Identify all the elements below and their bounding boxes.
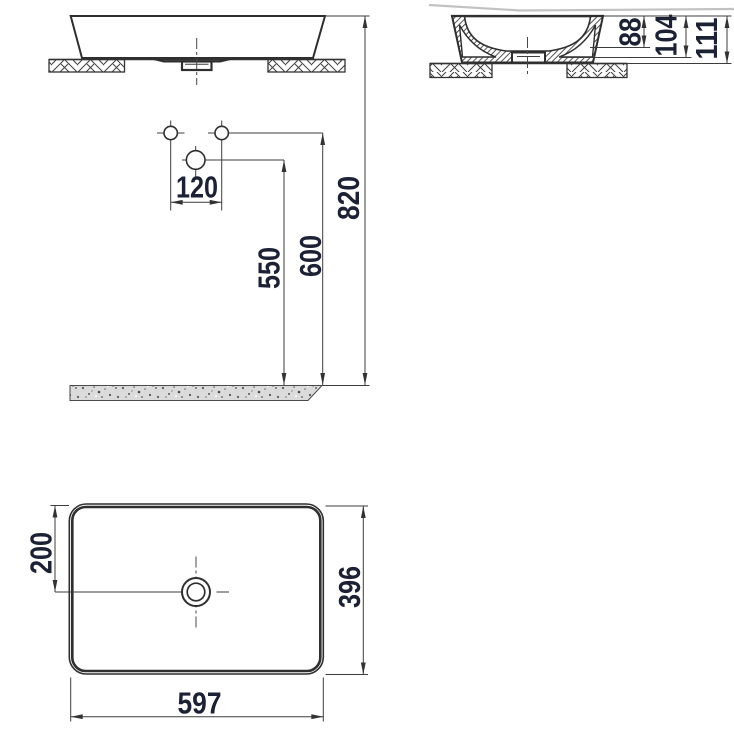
counter-hatch-left-section — [430, 64, 492, 78]
basin-front-outline — [71, 16, 325, 58]
counter-hatch-left — [49, 60, 125, 73]
floor-strip — [70, 386, 322, 401]
dim-label-drain-height: 550 — [252, 247, 287, 289]
counter-hatch-right — [268, 60, 345, 73]
technical-drawing-sheet: 120 550 600 820 88 1 — [0, 0, 734, 734]
drain-outlet-hole — [186, 151, 205, 170]
washbasin-dimension-drawing: 120 550 600 820 88 1 — [0, 0, 734, 734]
supply-hole-left — [164, 126, 177, 139]
scan-artifact-line — [429, 5, 734, 11]
drain-inner-circle — [187, 583, 205, 601]
dim-label-drain-offset: 200 — [24, 532, 59, 574]
dim-label-total-height: 111 — [689, 18, 724, 60]
dim-label-mid-height: 104 — [649, 14, 684, 57]
section-view: 88 104 111 — [429, 5, 734, 78]
plan-view: 200 396 597 — [24, 504, 369, 722]
dim-label-holes-height: 600 — [293, 235, 328, 277]
supply-hole-right — [215, 126, 228, 139]
dim-label-inner-depth: 88 — [613, 18, 648, 47]
dim-label-hole-spacing: 120 — [176, 170, 218, 205]
counter-hatch-right-section — [567, 64, 627, 78]
front-view: 120 550 600 820 — [49, 16, 370, 401]
drain-recess-section — [512, 53, 545, 63]
dim-label-plan-width: 597 — [178, 686, 222, 721]
dim-label-plan-depth: 396 — [332, 566, 367, 608]
dim-label-rim-height: 820 — [331, 176, 366, 220]
